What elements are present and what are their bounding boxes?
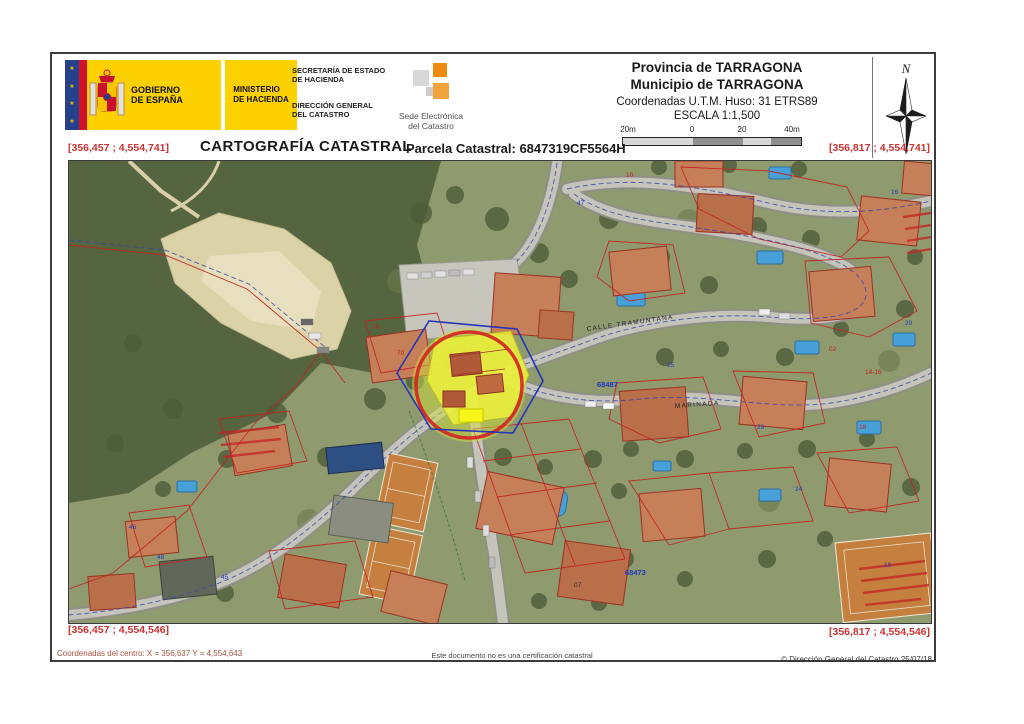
scale-bar-segments <box>622 137 802 146</box>
svg-text:14-16: 14-16 <box>865 369 882 376</box>
star-icon: ★ <box>69 118 74 125</box>
star-icon: ★ <box>69 65 74 72</box>
ministerio-label: MINISTERIO DE HACIENDA <box>233 85 289 104</box>
svg-text:10: 10 <box>884 562 892 569</box>
scale-segment <box>743 138 771 145</box>
svg-text:48: 48 <box>157 554 165 561</box>
scale-segment <box>623 138 693 145</box>
svg-text:16: 16 <box>891 189 899 196</box>
north-label: N <box>901 61 912 76</box>
svg-text:47: 47 <box>577 200 585 207</box>
gobierno-espana-logo: ★ ★ ★ ★ GOBIERNO DE ESPAÑA MINISTERI <box>65 60 297 130</box>
direccion-label: DIRECCIÓN GENERAL DEL CATASTRO <box>292 101 373 120</box>
gobierno-label: GOBIERNO DE ESPAÑA <box>131 85 183 106</box>
cadastral-document-page: ★ ★ ★ ★ GOBIERNO DE ESPAÑA MINISTERI <box>0 0 1024 724</box>
sede-squares-icon <box>407 62 455 104</box>
covered-court <box>326 442 384 474</box>
svg-text:68473: 68473 <box>625 568 646 577</box>
scale-label-0: 20m <box>620 125 636 134</box>
scale-segment <box>771 138 801 145</box>
sede-electronica-logo: Sede Electrónica del Catastro <box>383 62 479 131</box>
ministerio-box: MINISTERIO DE HACIENDA <box>225 60 297 130</box>
svg-text:10: 10 <box>626 172 634 179</box>
scale-label-1: 0 <box>690 125 694 134</box>
municipio-label: Municipio de TARRAGONA <box>592 77 842 92</box>
secretaria-label: SECRETARÍA DE ESTADO DE HACIENDA <box>292 66 385 85</box>
svg-text:25: 25 <box>667 362 675 369</box>
svg-text:76: 76 <box>372 324 380 331</box>
scale-bar: 20m 0 20 40m <box>622 125 802 147</box>
coat-of-arms-icon <box>87 67 127 123</box>
svg-text:23: 23 <box>757 424 765 431</box>
page-title: CARTOGRAFÍA CATASTRAL <box>200 138 412 155</box>
scale-label-3: 40m <box>784 125 800 134</box>
parcela-reference: Parcela Catastral: 6847319CF5564H <box>406 141 626 156</box>
svg-text:20: 20 <box>905 320 913 327</box>
escala-label: ESCALA 1:1,500 <box>592 110 842 122</box>
star-icon: ★ <box>69 100 74 107</box>
gobierno-box: GOBIERNO DE ESPAÑA <box>87 60 221 130</box>
svg-text:68487: 68487 <box>597 380 618 389</box>
svg-text:02: 02 <box>829 346 837 353</box>
coord-bottom-left: [356,457 ; 4,554,546] <box>68 624 169 636</box>
scale-label-2: 20 <box>738 125 747 134</box>
star-icon: ★ <box>69 83 74 90</box>
svg-text:24: 24 <box>795 486 803 493</box>
svg-text:46: 46 <box>129 524 137 531</box>
svg-text:07: 07 <box>574 582 582 589</box>
coord-bottom-right: [356,817 ; 4,554,546] <box>829 626 930 638</box>
utm-label: Coordenadas U.T.M. Huso: 31 ETRS89 <box>592 96 842 108</box>
coord-top-right: [356,817 ; 4,554,741] <box>829 142 930 154</box>
location-header: Provincia de TARRAGONA Municipio de TARR… <box>592 60 842 122</box>
svg-text:45: 45 <box>221 574 229 581</box>
coord-top-left: [356,457 ; 4,554,741] <box>68 142 169 154</box>
eu-flag-stripe: ★ ★ ★ ★ <box>65 60 79 130</box>
provincia-label: Provincia de TARRAGONA <box>592 60 842 75</box>
copyright: © Dirección General del Catastro 25/07/1… <box>781 655 932 664</box>
flag-red-stripe <box>79 60 87 130</box>
sede-label: Sede Electrónica del Catastro <box>383 111 479 131</box>
svg-text:18: 18 <box>859 424 867 431</box>
scale-segment <box>693 138 743 145</box>
svg-text:70: 70 <box>397 350 405 357</box>
cadastral-map: CALLE TRAMUNTANAMARINADA 6848768473 7076… <box>68 160 932 624</box>
